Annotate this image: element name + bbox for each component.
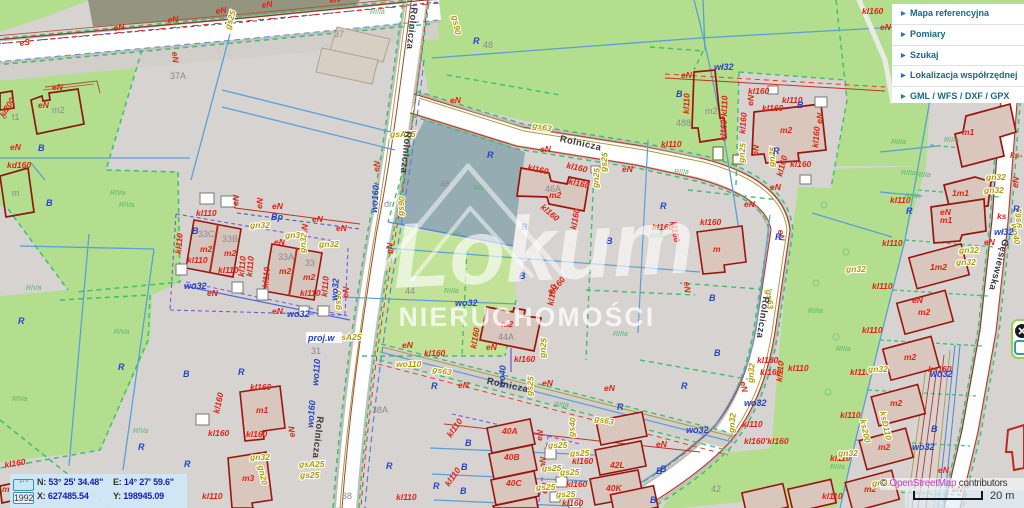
svg-text:kl110: kl110 — [196, 208, 217, 218]
svg-text:m2: m2 — [705, 106, 718, 116]
svg-text:ks: ks — [997, 211, 1007, 221]
svg-text:1m2: 1m2 — [930, 262, 947, 272]
svg-text:eN: eN — [622, 164, 634, 174]
svg-text:RIVa: RIVa — [119, 202, 134, 209]
svg-text:eN: eN — [272, 201, 284, 211]
svg-text:gs25: gs25 — [547, 440, 568, 450]
svg-text:eN: eN — [750, 144, 761, 157]
svg-text:gn32: gn32 — [249, 452, 270, 462]
svg-text:gn32: gn32 — [958, 245, 979, 255]
svg-text:R: R — [775, 232, 782, 242]
svg-text:kl160: kl160 — [208, 428, 230, 438]
svg-text:33: 33 — [305, 258, 315, 268]
svg-text:RIIIa: RIIIa — [674, 169, 689, 176]
svg-text:37A: 37A — [170, 71, 186, 81]
svg-text:eN: eN — [230, 194, 241, 207]
svg-text:eN: eN — [272, 306, 284, 316]
svg-text:kl110: kl110 — [872, 281, 893, 291]
svg-text:kl160: kl160 — [762, 103, 784, 113]
svg-text:R: R — [1013, 204, 1020, 214]
svg-text:wo32: wo32 — [930, 369, 953, 379]
svg-text:6: 6 — [2, 111, 7, 121]
svg-text:proj.w: proj.w — [307, 333, 335, 343]
svg-text:wo32: wo32 — [686, 425, 709, 435]
svg-text:488: 488 — [676, 118, 691, 128]
svg-text:eN: eN — [371, 160, 382, 172]
svg-text:eN: eN — [604, 383, 616, 393]
svg-text:gn32: gn32 — [726, 412, 738, 434]
svg-text:kl160: kl160 — [424, 348, 446, 358]
svg-text:Lokum: Lokum — [390, 190, 696, 308]
svg-text:m2: m2 — [878, 442, 891, 452]
svg-text:eN: eN — [52, 82, 64, 92]
svg-text:kl110: kl110 — [882, 238, 903, 248]
svg-text:eN: eN — [542, 378, 554, 388]
svg-text:NIERUCHOMOŚCI: NIERUCHOMOŚCI — [399, 302, 656, 332]
svg-text:33A: 33A — [278, 252, 294, 262]
svg-text:m2: m2 — [904, 352, 917, 362]
svg-text:kl110: kl110 — [774, 360, 786, 382]
svg-text:R: R — [487, 150, 494, 160]
svg-text:B: B — [931, 424, 938, 434]
svg-text:wł32: wł32 — [994, 227, 1014, 237]
svg-text:kl160: kl160 — [566, 479, 588, 489]
svg-text:m2: m2 — [224, 248, 237, 258]
svg-text:B: B — [46, 198, 53, 208]
svg-text:kl160: kl160 — [514, 354, 536, 364]
svg-text:eN: eN — [681, 70, 693, 80]
svg-text:R: R — [681, 381, 688, 391]
svg-text:RIVa: RIVa — [133, 428, 148, 435]
svg-text:eN: eN — [254, 197, 265, 210]
svg-text:ks-: ks- — [1010, 150, 1022, 160]
svg-text:R: R — [473, 36, 480, 46]
svg-text:RIIIa: RIIIa — [901, 170, 916, 177]
svg-text:B: B — [461, 462, 468, 472]
svg-text:R: R — [433, 481, 440, 491]
svg-text:B: B — [714, 348, 721, 358]
svg-text:m: m — [12, 188, 20, 198]
svg-text:eN: eN — [814, 112, 825, 125]
svg-text:31: 31 — [311, 346, 321, 356]
svg-text:kl160: kl160 — [790, 159, 812, 169]
svg-text:m2: m2 — [200, 244, 213, 254]
svg-text:gn25: gn25 — [736, 142, 748, 164]
svg-text:kl110: kl110 — [661, 139, 682, 149]
svg-text:R: R — [118, 362, 125, 372]
svg-text:kl160: kl160 — [810, 126, 822, 148]
svg-text:eN: eN — [286, 425, 297, 438]
svg-text:RIIIa: RIIIa — [836, 346, 851, 353]
svg-text:R: R — [617, 402, 624, 412]
svg-text:gs40: gs40 — [566, 417, 578, 438]
svg-text:gn32: gn32 — [985, 172, 1006, 182]
svg-text:38A: 38A — [372, 405, 388, 415]
svg-text:kl110: kl110 — [788, 363, 809, 373]
svg-text:kl160: kl160 — [562, 498, 584, 508]
svg-text:gsA25: gsA25 — [298, 459, 325, 469]
svg-text:kl160: kl160 — [700, 217, 722, 227]
svg-text:kl110: kl110 — [260, 266, 272, 288]
svg-text:R: R — [138, 442, 145, 452]
svg-text:m2: m2 — [918, 307, 931, 317]
svg-text:eN: eN — [274, 237, 286, 247]
svg-text:gn32: gn32 — [983, 185, 1004, 195]
svg-text:wo32: wo32 — [912, 442, 935, 452]
svg-text:gn32: gn32 — [318, 239, 339, 249]
svg-text:33B: 33B — [222, 234, 238, 244]
svg-text:gs25: gs25 — [541, 463, 562, 473]
svg-text:kl110: kl110 — [840, 410, 861, 420]
svg-text:m2: m2 — [890, 398, 903, 408]
svg-text:Bp: Bp — [271, 212, 283, 222]
svg-text:kl110: kl110 — [862, 325, 883, 335]
svg-text:gs25: gs25 — [299, 470, 320, 480]
svg-text:40A: 40A — [501, 426, 518, 436]
svg-text:m3: m3 — [242, 473, 255, 483]
svg-text:RIIIa: RIIIa — [830, 464, 845, 471]
svg-text:B: B — [656, 466, 663, 476]
svg-text:R: R — [238, 367, 245, 377]
svg-text:m2: m2 — [279, 266, 292, 276]
svg-text:eN: eN — [938, 465, 950, 475]
svg-text:46A: 46A — [545, 184, 561, 194]
svg-text:kl110: kl110 — [681, 93, 692, 114]
svg-text:m: m — [2, 484, 10, 494]
svg-text:42L: 42L — [609, 460, 625, 470]
svg-text:44A: 44A — [498, 332, 514, 342]
svg-text:gn32: gn32 — [867, 364, 888, 374]
svg-text:eN: eN — [912, 295, 924, 305]
svg-text:40B: 40B — [503, 452, 520, 462]
svg-text:eN: eN — [540, 144, 552, 154]
svg-text:eN: eN — [656, 439, 668, 449]
svg-text:gn32: gn32 — [837, 448, 858, 458]
svg-text:40K: 40K — [605, 483, 622, 493]
svg-text:eN: eN — [38, 100, 50, 110]
svg-text:RIVa: RIVa — [114, 329, 129, 336]
svg-text:R: R — [184, 459, 191, 469]
svg-text:wł32: wł32 — [714, 62, 734, 72]
svg-text:kd160: kd160 — [7, 160, 31, 170]
svg-text:eN: eN — [261, 0, 274, 10]
svg-text:eN: eN — [402, 340, 414, 350]
svg-text:R: R — [773, 146, 780, 156]
svg-text:B: B — [709, 293, 716, 303]
svg-text:wo32: wo32 — [287, 309, 310, 319]
svg-text:gs25: gs25 — [559, 467, 580, 477]
svg-text:R: R — [18, 316, 25, 326]
svg-text:B: B — [797, 100, 804, 110]
svg-text:eN: eN — [770, 182, 782, 192]
svg-text:m2: m2 — [780, 125, 793, 135]
svg-text:m2: m2 — [52, 105, 65, 115]
svg-text:RIIIa: RIIIa — [891, 139, 906, 146]
svg-text:wo160:: wo160: — [369, 182, 381, 213]
svg-text:RIVa: RIVa — [26, 285, 41, 292]
svg-text:B: B — [676, 89, 683, 99]
svg-text:R: R — [906, 206, 913, 216]
svg-text:gn32: gn32 — [845, 264, 866, 274]
svg-text:kl110: kl110 — [187, 255, 208, 265]
svg-text:37: 37 — [334, 29, 344, 39]
svg-text:kl110: kl110 — [822, 491, 843, 501]
svg-text:m1: m1 — [256, 405, 269, 415]
svg-text:kl110: kl110 — [202, 491, 223, 501]
svg-text:B: B — [183, 369, 190, 379]
svg-text:m: m — [713, 244, 721, 254]
svg-text:eN: eN — [10, 142, 22, 152]
svg-text:gn32: gn32 — [297, 232, 309, 254]
svg-text:kl110: kl110 — [244, 255, 256, 277]
svg-text:wo32: wo32 — [184, 281, 207, 291]
svg-text:42: 42 — [711, 484, 721, 494]
svg-text:R: R — [431, 381, 438, 391]
svg-text:gs25: gs25 — [569, 448, 590, 458]
svg-text:kl160'kl160: kl160'kl160 — [744, 436, 789, 446]
svg-text:kl110: kl110 — [300, 288, 321, 298]
svg-text:B: B — [465, 438, 472, 448]
svg-text:kl160: kl160 — [246, 429, 268, 439]
svg-text:gn32: gn32 — [745, 362, 757, 384]
svg-text:RIIIa: RIIIa — [808, 308, 823, 315]
svg-text:RIVa: RIVa — [12, 396, 27, 403]
svg-text:kl160: kl160 — [737, 112, 749, 134]
svg-text:gn32: gn32 — [249, 220, 270, 230]
svg-text:kl160*kl110: kl160*kl110 — [718, 95, 730, 141]
svg-text:48: 48 — [483, 40, 493, 50]
svg-text:eN: eN — [880, 22, 892, 32]
svg-text:eN: eN — [984, 237, 996, 247]
svg-text:38: 38 — [342, 491, 352, 501]
svg-text:eN: eN — [170, 51, 181, 64]
svg-text:gs25: gs25 — [555, 489, 576, 499]
svg-text:gn32: gn32 — [955, 257, 976, 267]
svg-text:kl110: kl110 — [173, 232, 185, 254]
svg-text:kl160: kl160 — [250, 382, 272, 392]
svg-text:RIIIa: RIIIa — [916, 172, 931, 179]
svg-text:eN: eN — [450, 95, 462, 105]
svg-text:gn25: gn25 — [590, 167, 602, 189]
svg-text:eN: eN — [458, 380, 470, 390]
svg-text:eN: eN — [1010, 176, 1021, 189]
svg-text:RIIIa: RIIIa — [905, 193, 920, 200]
svg-text:eN: eN — [336, 223, 348, 233]
svg-text:eN: eN — [534, 429, 545, 442]
svg-text:wo32: wo32 — [329, 278, 341, 301]
svg-text:m2: m2 — [303, 272, 316, 282]
svg-text:RIIIa: RIIIa — [613, 331, 628, 338]
svg-text:kl110: kl110 — [396, 492, 417, 502]
svg-text:gs25: gs25 — [535, 482, 556, 492]
svg-text:wo32: wo32 — [744, 398, 767, 408]
svg-text:kl160: kl160 — [748, 86, 770, 96]
svg-text:kl160: kl160 — [862, 6, 884, 16]
svg-text:RIVa: RIVa — [110, 190, 125, 197]
svg-text:eN: eN — [744, 199, 756, 209]
svg-text:B: B — [460, 486, 467, 496]
svg-text:kl110: kl110 — [742, 419, 763, 429]
svg-text:RIIIa: RIIIa — [554, 402, 569, 409]
svg-text:eN: eN — [312, 214, 324, 224]
svg-text:B: B — [650, 495, 657, 505]
svg-text:gn25: gn25 — [537, 337, 549, 359]
svg-text:eN: eN — [745, 94, 756, 107]
svg-text:eN: eN — [207, 288, 219, 298]
svg-text:RIIIa: RIIIa — [370, 9, 385, 16]
svg-text:RIIIa: RIIIa — [944, 137, 959, 144]
svg-text:wo110: wo110 — [396, 359, 422, 369]
svg-text:eN: eN — [486, 342, 498, 352]
svg-text:eS: eS — [19, 37, 31, 48]
svg-text:B: B — [38, 143, 45, 153]
svg-text:m1: m1 — [962, 127, 975, 137]
svg-text:m1: m1 — [940, 215, 953, 225]
svg-text:33C: 33C — [198, 229, 215, 239]
svg-text:1m1: 1m1 — [952, 188, 969, 198]
svg-text:t1: t1 — [12, 112, 20, 122]
svg-text:R: R — [386, 461, 393, 471]
svg-text:40C: 40C — [505, 478, 522, 488]
